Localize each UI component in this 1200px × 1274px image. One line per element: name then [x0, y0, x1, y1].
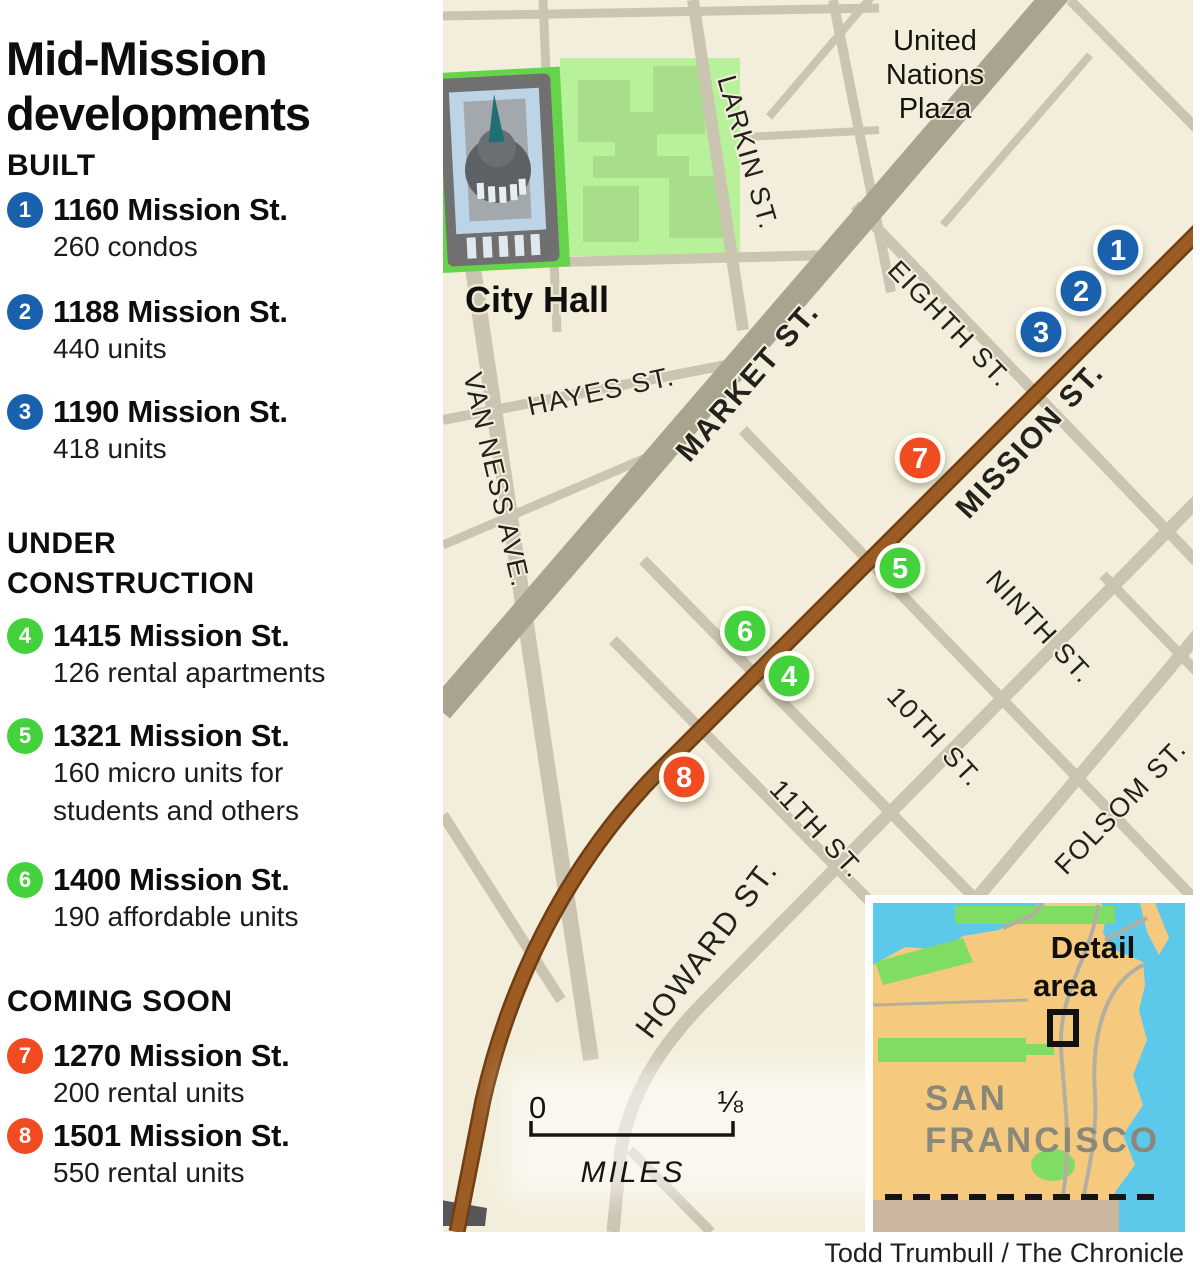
svg-text:United: United — [893, 25, 977, 57]
marker-1-badge: 1 — [7, 192, 43, 228]
scale-end: ⅛ — [717, 1084, 743, 1119]
svg-text:1: 1 — [1110, 235, 1126, 267]
united-nations-plaza-label: United Nations Plaza — [886, 25, 984, 125]
legend-item-1160-mission: 1 1160 Mission St. 260 condos — [7, 192, 427, 266]
legend-item-1415-mission: 4 1415 Mission St. 126 rental apartments — [7, 618, 427, 692]
map-marker-6: 6 — [720, 606, 770, 656]
address: 1400 Mission St. — [53, 862, 289, 898]
map-marker-1: 1 — [1093, 225, 1143, 275]
section-heading-built: BUILT — [7, 146, 347, 186]
legend-item-1270-mission: 7 1270 Mission St. 200 rental units — [7, 1038, 427, 1112]
marker-8-badge: 8 — [7, 1118, 43, 1154]
marker-5-badge: 5 — [7, 718, 43, 754]
credit-line: Todd Trumbull / The Chronicle — [824, 1238, 1184, 1269]
svg-text:SAN: SAN — [925, 1079, 1008, 1118]
title-line-2: developments — [6, 87, 310, 140]
address: 1321 Mission St. — [53, 718, 289, 754]
address: 1190 Mission St. — [53, 394, 288, 430]
svg-text:5: 5 — [892, 553, 908, 585]
svg-text:Detail: Detail — [1051, 930, 1135, 965]
svg-text:Nations: Nations — [886, 59, 984, 91]
map-marker-2: 2 — [1056, 266, 1106, 316]
description: 126 rental apartments — [53, 654, 363, 692]
inset-map: Detail area SAN FRANCISCO — [865, 895, 1193, 1232]
legend-item-1501-mission: 8 1501 Mission St. 550 rental units — [7, 1118, 427, 1192]
marker-4-badge: 4 — [7, 618, 43, 654]
description: 160 micro units for students and others — [53, 754, 363, 830]
inset-county-south — [873, 1200, 1119, 1232]
legend-item-1190-mission: 3 1190 Mission St. 418 units — [7, 394, 427, 468]
marker-3-badge: 3 — [7, 394, 43, 430]
svg-text:8: 8 — [676, 762, 692, 794]
street-map: City Hall United Nations Plaza LARKIN ST… — [443, 0, 1193, 1232]
city-hall-building — [443, 67, 570, 273]
description: 550 rental units — [53, 1154, 363, 1192]
svg-text:Plaza: Plaza — [899, 93, 972, 125]
city-hall-label: City Hall — [465, 279, 609, 320]
scale-unit: MILES — [580, 1156, 685, 1189]
legend-item-1400-mission: 6 1400 Mission St. 190 affordable units — [7, 862, 427, 936]
address: 1270 Mission St. — [53, 1038, 289, 1074]
description: 418 units — [53, 430, 363, 468]
scale-start: 0 — [529, 1090, 546, 1125]
title-line-1: Mid-Mission — [6, 32, 267, 85]
description: 440 units — [53, 330, 363, 368]
description: 260 condos — [53, 228, 363, 266]
map-marker-5: 5 — [875, 543, 925, 593]
map-marker-4: 4 — [764, 651, 814, 701]
map-marker-7: 7 — [895, 433, 945, 483]
svg-text:6: 6 — [737, 616, 753, 648]
legend-item-1321-mission: 5 1321 Mission St. 160 micro units for s… — [7, 718, 427, 830]
map-canvas: City Hall United Nations Plaza LARKIN ST… — [443, 0, 1193, 1232]
description: 190 affordable units — [53, 898, 363, 936]
map-marker-8: 8 — [659, 752, 709, 802]
section-heading-under-construction: UNDER CONSTRUCTION — [7, 524, 347, 604]
address: 1501 Mission St. — [53, 1118, 289, 1154]
map-marker-3: 3 — [1016, 307, 1066, 357]
legend-item-1188-mission: 2 1188 Mission St. 440 units — [7, 294, 427, 368]
legend-sidebar: Mid-Mission developments BUILT 1 1160 Mi… — [0, 0, 443, 1274]
description: 200 rental units — [53, 1074, 363, 1112]
section-heading-coming-soon: COMING SOON — [7, 982, 347, 1022]
svg-text:3: 3 — [1033, 317, 1049, 349]
svg-text:area: area — [1033, 968, 1098, 1003]
address: 1415 Mission St. — [53, 618, 289, 654]
address: 1160 Mission St. — [53, 192, 288, 228]
svg-text:7: 7 — [912, 443, 928, 475]
address: 1188 Mission St. — [53, 294, 288, 330]
page-title: Mid-Mission developments — [6, 31, 310, 141]
svg-text:FRANCISCO: FRANCISCO — [925, 1121, 1160, 1160]
svg-text:2: 2 — [1073, 276, 1089, 308]
marker-2-badge: 2 — [7, 294, 43, 330]
svg-text:4: 4 — [781, 661, 797, 693]
marker-7-badge: 7 — [7, 1038, 43, 1074]
marker-6-badge: 6 — [7, 862, 43, 898]
